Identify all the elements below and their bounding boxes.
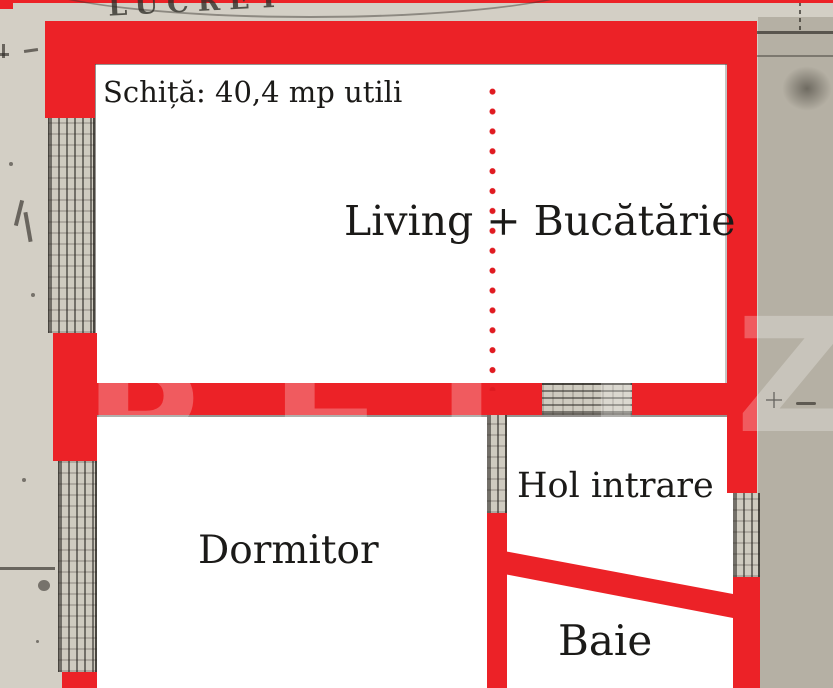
pencil-line-left	[0, 567, 55, 570]
speckle	[22, 478, 26, 482]
room-label-dormitor: Dormitor	[198, 531, 379, 570]
wall-corner-blob	[0, 0, 13, 9]
pencil-mark	[24, 48, 38, 53]
dashed-line-mark-top	[799, 0, 801, 30]
speckle	[9, 162, 13, 166]
pencil-mark	[23, 212, 32, 242]
wall-texture-left-upper	[48, 118, 95, 333]
dash-mark	[796, 402, 816, 405]
speckle	[31, 293, 35, 297]
room-label-living: Living + Bucătărie	[344, 201, 736, 242]
plus-mark-v	[773, 392, 775, 408]
room-label-hol-intrare: Hol intrare	[517, 469, 714, 504]
stamp-text: LUCRET	[107, 0, 288, 23]
wall-texture-left-lower	[58, 461, 97, 672]
wall-right-lower	[733, 577, 760, 688]
sketch-title: Schiță: 40,4 mp utili	[103, 78, 402, 107]
wall-left-bottom	[62, 672, 97, 688]
door-gap-right-wall	[733, 493, 760, 577]
wall-left-upper	[45, 21, 95, 118]
paper-right-smudge	[782, 66, 832, 111]
plan-line-band-bottom	[97, 415, 733, 417]
wall-top	[45, 21, 757, 64]
pencil-mark	[2, 44, 5, 58]
door-gap-living-hol	[542, 383, 632, 415]
paper-right-topline-2	[756, 55, 833, 57]
paper-right-topline-1	[756, 31, 833, 34]
room-label-baie: Baie	[558, 620, 652, 662]
wall-mid-right	[632, 383, 733, 415]
wall-right-upper	[727, 21, 757, 493]
wall-left-mid	[53, 333, 97, 461]
paper-right-region	[758, 17, 833, 688]
pencil-blob	[38, 580, 50, 591]
stamp-arc	[18, 0, 602, 18]
door-gap-dormitor-hol	[487, 415, 507, 513]
speckle	[36, 640, 39, 643]
wall-mid-left	[95, 383, 542, 415]
floorplan-canvas: LUCRET BLITZ Schiță: 40,4 mp uti	[0, 0, 833, 688]
wall-hol-lower	[487, 513, 507, 688]
